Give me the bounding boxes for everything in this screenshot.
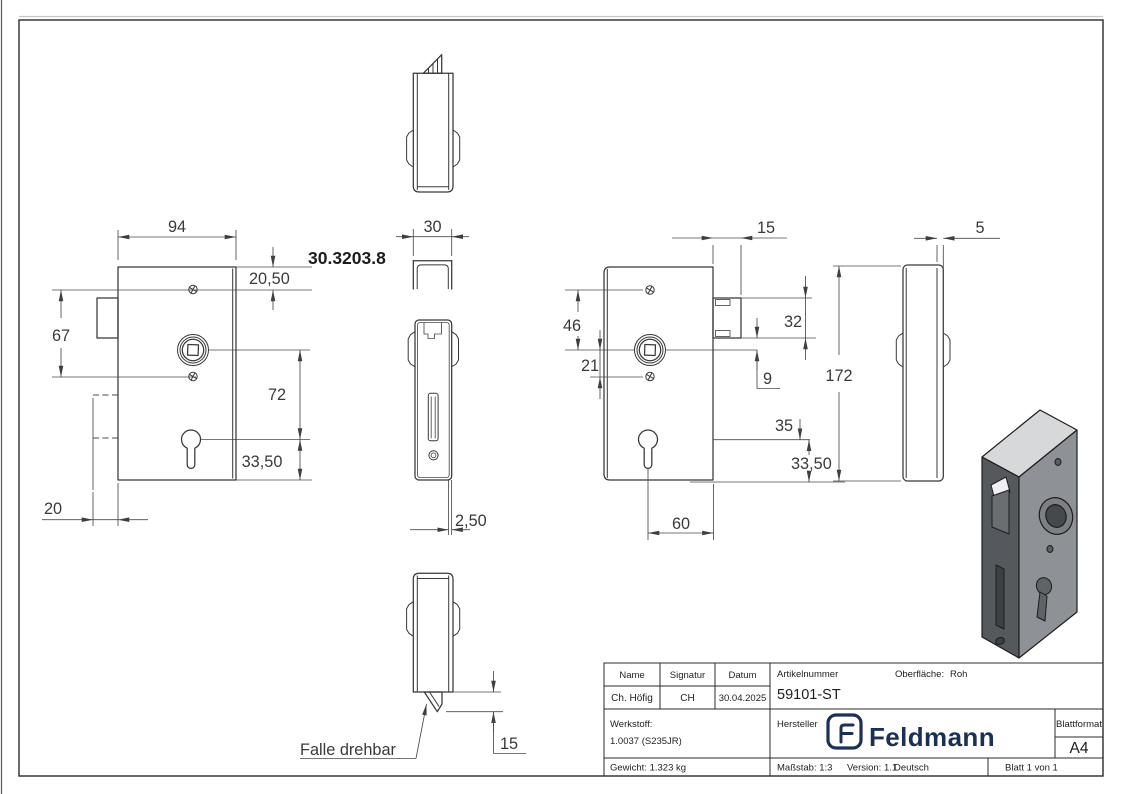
tb-datum-label: Datum — [729, 670, 757, 681]
dim-box-depth: 20 — [44, 500, 62, 518]
dim-top-to-screw: 20,50 — [249, 270, 290, 288]
tb-werkstoff-label: Werkstoff: — [610, 719, 652, 730]
tb-name-label: Name — [619, 670, 644, 681]
screw-bottom-icon — [189, 372, 197, 380]
tb-signatur-label: Signatur — [670, 670, 705, 681]
dim-body-width: 94 — [168, 218, 186, 236]
dim-faceplate-thickness-side: 5 — [975, 219, 984, 237]
tb-oberflaeche-label: Oberfläche: — [895, 669, 944, 680]
tb-oberflaeche-value: Roh — [950, 669, 967, 680]
cad-drawing: 94 20,50 67 72 33,50 20 30.3203.8 — [0, 0, 1123, 794]
dim-latch-offset: 9 — [763, 370, 772, 388]
dim-spindle-to-cylinder: 72 — [268, 386, 286, 404]
dim-30-group: 30 — [396, 218, 469, 256]
euro-cylinder-hole-right — [639, 430, 658, 468]
u-profile-section — [413, 261, 451, 289]
dim-cylinder-to-bottom: 33,50 — [242, 453, 283, 471]
spindle-hub-right — [635, 335, 666, 366]
dim-cylinder-line: 35 — [775, 417, 793, 435]
drawing-sheet: 94 20,50 67 72 33,50 20 30.3203.8 — [0, 0, 1123, 794]
feldmann-logo: Feldmann — [828, 715, 995, 752]
tb-blatt: Blatt 1 von 1 — [1005, 763, 1058, 774]
dim-spindle-to-screw: 21 — [581, 357, 599, 375]
faceplate-hole — [429, 451, 438, 460]
bolt-slot — [428, 393, 438, 441]
dim-screw-to-spindle: 46 — [563, 317, 581, 335]
dim-cylinder-to-bottom-right: 33,50 — [791, 455, 832, 473]
screw-top-right-icon — [646, 286, 654, 294]
tb-hersteller-label: Hersteller — [777, 719, 818, 730]
feldmann-logo-f-icon — [841, 725, 853, 742]
tb-version: Version: 1.1 — [847, 763, 897, 774]
tb-blattformat-value: A4 — [1070, 740, 1089, 757]
tb-datum-value: 30.04.2025 — [719, 693, 767, 704]
dim-cylinder-offset: 60 — [672, 515, 690, 533]
dim-15-bottom-group: 15 — [446, 671, 526, 754]
latch-right — [713, 298, 741, 338]
slot-3d — [996, 565, 1004, 629]
falle-drehbar-callout: Falle drehbar — [300, 704, 427, 759]
tb-name-value: Ch. Höfig — [611, 693, 653, 704]
side-view-top — [407, 55, 460, 192]
part-number: 30.3203.8 — [308, 248, 386, 268]
faceplate-view — [408, 320, 458, 480]
screw-bottom-right-icon — [646, 372, 654, 380]
spindle-hub — [178, 335, 209, 366]
brand-name: Feldmann — [869, 722, 995, 752]
euro-cylinder-hole — [182, 430, 201, 468]
tb-blattformat-label: Blattformat — [1056, 719, 1102, 730]
latch-bottom — [424, 692, 442, 712]
tb-gewicht: Gewicht: 1.323 kg — [610, 763, 686, 774]
side-view-right — [896, 265, 950, 481]
dim-latch-height: 32 — [784, 313, 802, 331]
dim-screw-spacing: 67 — [52, 327, 70, 345]
falle-drehbar-label: Falle drehbar — [300, 741, 397, 759]
tb-artikelnummer-label: Artikelnummer — [777, 669, 838, 680]
tb-massstab: Maßstab: 1:3 — [777, 763, 832, 774]
tb-signatur-value: CH — [680, 693, 694, 704]
dim-body-height: 172 — [825, 367, 852, 385]
tb-artikelnummer-value: 59101-ST — [777, 687, 841, 703]
iso-render-3d — [982, 410, 1077, 658]
tb-sprache: Deutsch — [894, 763, 929, 774]
dim-profile-width: 30 — [423, 218, 441, 236]
tb-werkstoff-value: 1.0037 (S235JR) — [610, 736, 682, 747]
side-view-bottom — [407, 573, 460, 711]
screw-top-icon — [189, 285, 197, 293]
dim-faceplate-thickness-front: 2,50 — [455, 512, 487, 530]
side-view-right-dimensions: 172 5 — [825, 219, 1000, 481]
title-block: Name Signatur Datum Ch. Höfig CH 30.04.2… — [604, 663, 1103, 776]
dim-latch-protrusion-side: 15 — [757, 219, 775, 237]
dim-250-group: 2,50 — [410, 480, 487, 535]
dim-latch-protrusion-bottom: 15 — [500, 735, 518, 753]
